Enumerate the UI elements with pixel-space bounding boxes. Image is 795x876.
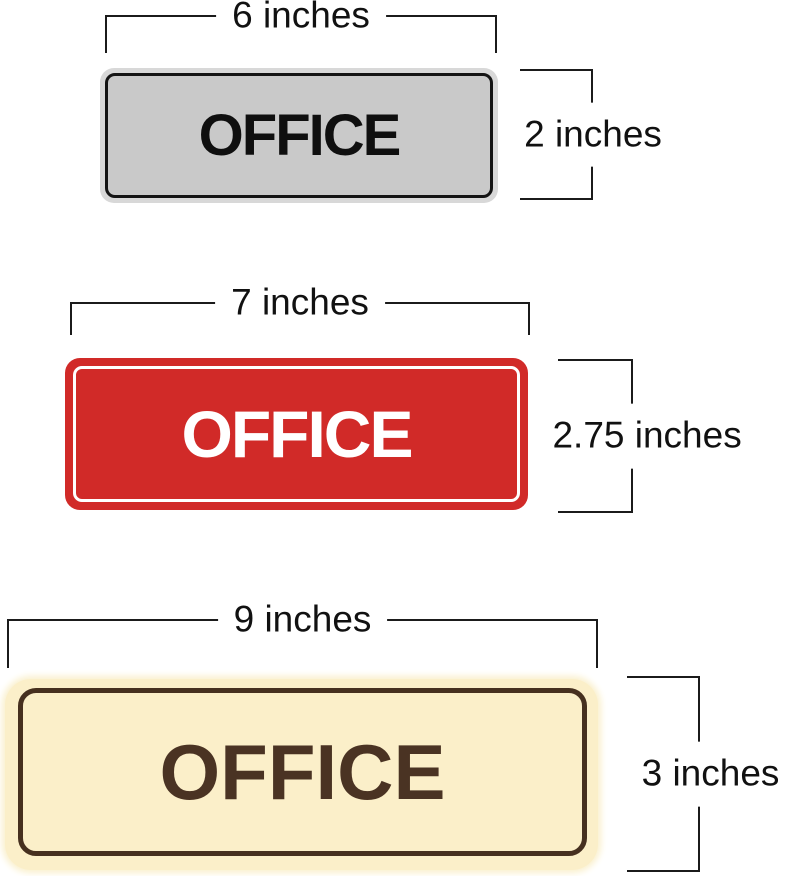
- dimension-tick-left: [70, 302, 72, 335]
- office-sign-gray: OFFICE: [100, 68, 498, 203]
- office-sign-red: OFFICE: [65, 358, 528, 510]
- width-label: 7 inches: [215, 283, 385, 324]
- dimension-tick-top: [627, 676, 700, 678]
- height-bracket-2in: 2 inches: [520, 69, 593, 200]
- sign-plate: OFFICE: [73, 366, 520, 502]
- dimension-tick-left: [7, 619, 9, 668]
- width-label: 6 inches: [216, 0, 386, 36]
- dimension-tick-top: [558, 359, 633, 361]
- dimension-tick-bottom: [627, 870, 700, 872]
- sign-plate: OFFICE: [18, 688, 587, 856]
- height-label: 2 inches: [518, 102, 668, 167]
- sign-text: OFFICE: [160, 733, 446, 811]
- dimension-tick-right: [528, 302, 530, 335]
- office-sign-cream: OFFICE: [5, 679, 598, 870]
- width-label: 9 inches: [218, 600, 388, 641]
- sign-text: OFFICE: [199, 107, 400, 165]
- height-label: 2.75 inches: [546, 404, 747, 469]
- product-size-comparison: 6 inches 2 inches OFFICE 7 inches 2.75 i…: [0, 0, 795, 876]
- sign-plate: OFFICE: [105, 73, 493, 198]
- dimension-tick-bottom: [558, 511, 633, 513]
- dimension-tick-left: [105, 15, 107, 53]
- dimension-tick-top: [520, 69, 593, 71]
- dimension-tick-right: [495, 15, 497, 53]
- height-label: 3 inches: [636, 742, 786, 807]
- sign-text: OFFICE: [182, 401, 412, 467]
- height-bracket-3in: 3 inches: [627, 676, 700, 872]
- dimension-tick-right: [596, 619, 598, 668]
- dimension-tick-bottom: [520, 198, 593, 200]
- height-bracket-2-75in: 2.75 inches: [558, 359, 633, 513]
